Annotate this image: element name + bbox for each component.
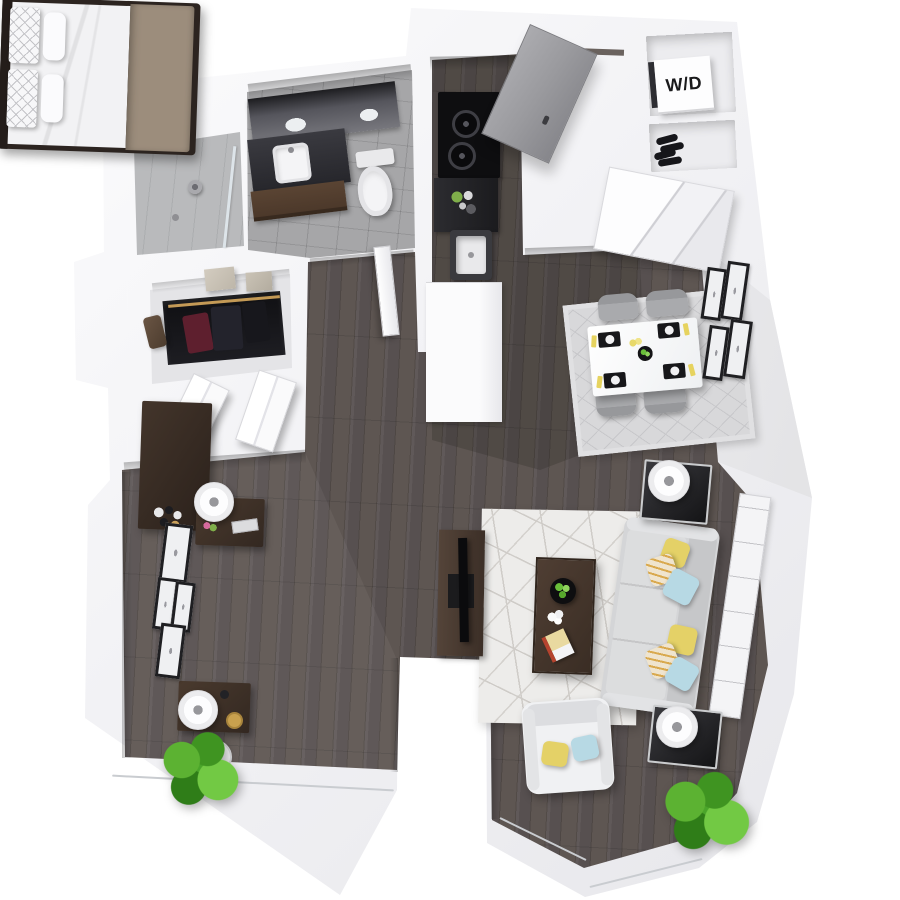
storage-box xyxy=(246,271,273,291)
napkin xyxy=(688,364,696,377)
decor-flowers xyxy=(202,520,218,534)
storage-box xyxy=(204,266,236,291)
dining-chair xyxy=(645,288,689,318)
counter-items xyxy=(450,188,478,218)
flower-vase xyxy=(546,608,566,626)
fruit-bowl xyxy=(550,578,576,604)
washer-dryer-unit: W/D xyxy=(654,56,714,115)
napkin xyxy=(591,335,597,347)
potted-plant xyxy=(656,764,754,858)
dining-table xyxy=(587,317,703,396)
bed-pillow-white xyxy=(43,12,67,61)
bed-blanket xyxy=(125,4,194,152)
placemat xyxy=(603,372,626,389)
plate xyxy=(664,325,674,335)
tv-screen xyxy=(458,538,469,642)
candle xyxy=(220,690,229,699)
placemat xyxy=(598,331,621,348)
dining-chair xyxy=(597,292,639,321)
apartment-floorplan: W/D xyxy=(0,0,900,900)
placemat xyxy=(657,322,680,339)
throw-pillow-yellow xyxy=(540,740,569,767)
napkin xyxy=(683,323,690,336)
table-lamp xyxy=(656,706,698,748)
plate xyxy=(610,375,620,385)
plate xyxy=(604,335,614,345)
armchair-back xyxy=(525,699,606,727)
bed xyxy=(0,0,201,155)
placemat xyxy=(663,363,686,380)
shower-drain xyxy=(172,214,179,221)
bed-pillow-patterned xyxy=(6,69,38,128)
washer-dryer-label: W/D xyxy=(665,72,703,96)
burner-icon xyxy=(452,110,480,138)
hanging-garment xyxy=(211,305,244,351)
sink-drain xyxy=(468,252,474,258)
table-lamp xyxy=(648,460,690,502)
faucet-icon xyxy=(288,147,294,153)
burner-icon xyxy=(448,142,476,170)
bed-pillow-patterned xyxy=(8,7,40,64)
plate xyxy=(669,366,679,376)
potted-plant xyxy=(156,724,242,814)
centerpiece-flowers xyxy=(628,336,643,349)
door-handle-icon xyxy=(542,115,550,125)
table-lamp xyxy=(194,482,234,522)
bed-pillow-white xyxy=(40,74,64,123)
kitchen-cabinet xyxy=(426,282,502,422)
shower-head xyxy=(188,180,202,194)
napkin xyxy=(596,376,602,389)
